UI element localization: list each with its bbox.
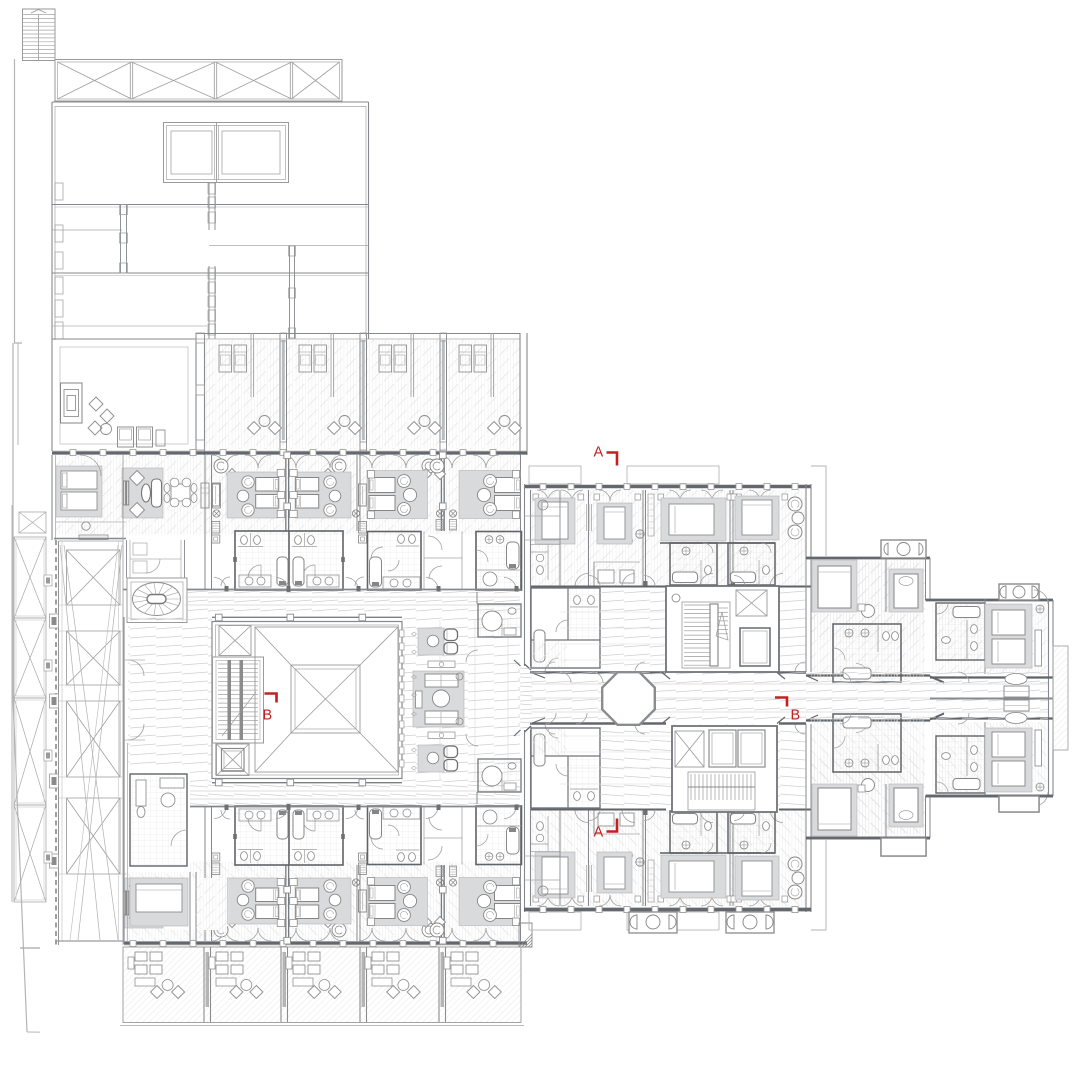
svg-text:B: B xyxy=(263,708,273,724)
svg-text:B: B xyxy=(791,708,801,724)
svg-text:A: A xyxy=(594,825,604,841)
svg-text:A: A xyxy=(594,445,604,461)
